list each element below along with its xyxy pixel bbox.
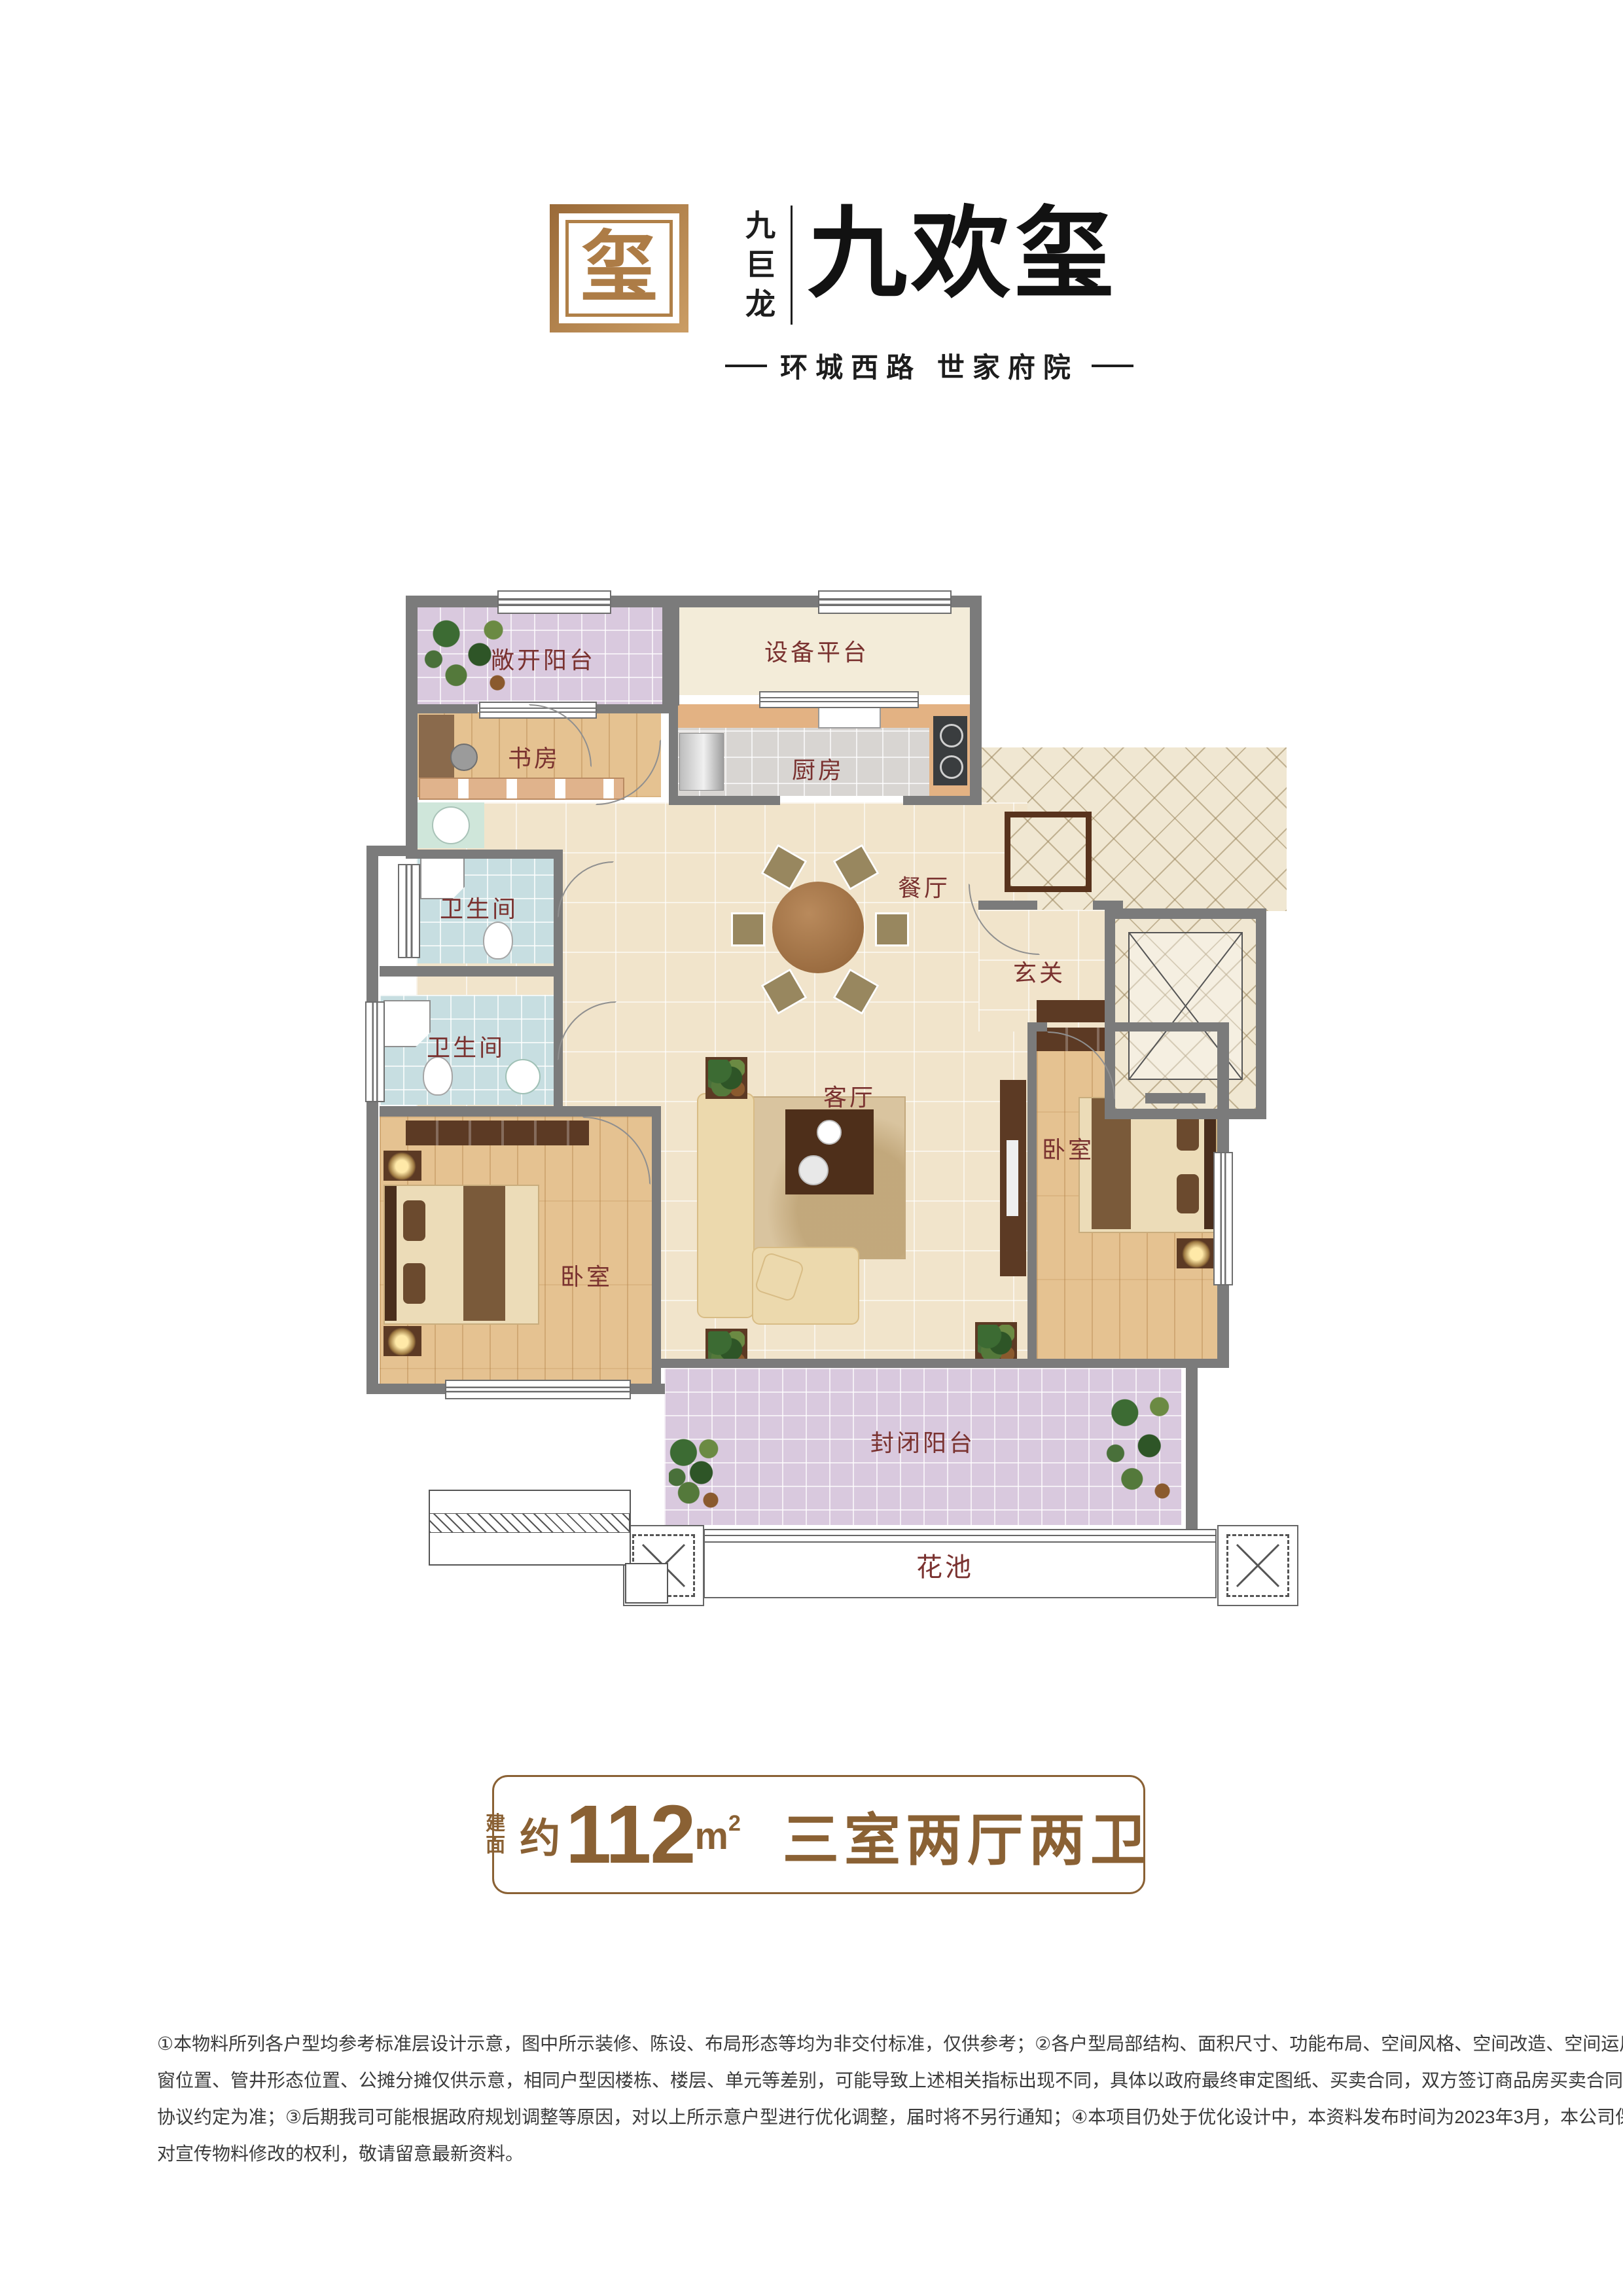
badge-area-value: 112 [565, 1793, 694, 1876]
bed-pillow [403, 1200, 425, 1241]
wall [662, 596, 679, 706]
bed-blanket [463, 1186, 505, 1321]
brand-tagline: 环城西路 世家府院 [720, 346, 1139, 386]
brand-divider [791, 206, 793, 325]
wall [406, 704, 478, 713]
dining-chair [875, 912, 909, 946]
wall [554, 850, 563, 1106]
badge-built-area-char1: 建 [486, 1813, 507, 1835]
tagline-dash-left [725, 365, 767, 367]
kitchen-stove [933, 716, 967, 785]
disclaimer-line-1: ①本物料所列各户型均参考标准层设计示意，图中所示装修、陈设、布局形态等均为非交付… [157, 2026, 1472, 2062]
wall [652, 1106, 661, 1394]
dining-table [772, 882, 864, 973]
bed-pillow [403, 1263, 425, 1304]
wall [366, 846, 378, 1394]
wall [380, 966, 554, 977]
label-open-balcony: 敞开阳台 [491, 641, 596, 675]
label-closed-balcony: 封闭阳台 [870, 1424, 975, 1458]
seal-glyph: 玺 [580, 230, 658, 307]
company-name-vertical: 九巨龙 [737, 209, 780, 334]
wall [1186, 1368, 1198, 1529]
plant-pot [975, 1322, 1017, 1364]
elevator-shaft [1105, 908, 1266, 1119]
step-outline [625, 1563, 668, 1604]
disclaimer-line-4: 对宣传物料修改的权利，敬请留意最新资料。 [157, 2136, 1472, 2172]
table-dish [817, 1120, 842, 1145]
badge-area-unit: m2 [694, 1811, 741, 1858]
window [497, 590, 611, 614]
vanity-basin [432, 806, 470, 844]
table-dish [798, 1155, 829, 1185]
window [759, 691, 919, 708]
entry-door-frame [1005, 812, 1092, 892]
project-name: 九欢玺 [808, 187, 1118, 321]
wall [970, 596, 982, 805]
label-kitchen: 厨房 [792, 751, 844, 785]
window [445, 1380, 631, 1399]
wardrobe-left [406, 1121, 589, 1145]
label-living: 客厅 [823, 1079, 876, 1113]
tagline-text: 环城西路 世家府院 [780, 346, 1079, 386]
wall [1113, 1022, 1229, 1031]
plant-decor [669, 1427, 721, 1518]
bed-left [383, 1185, 539, 1325]
lamp-glow [387, 1152, 416, 1181]
poster-page: 玺 九巨龙 九欢玺 环城西路 世家府院 [0, 0, 1623, 2296]
label-equipment-platform: 设备平台 [764, 634, 869, 668]
tagline-dash-right [1092, 365, 1133, 367]
window [1213, 1152, 1233, 1285]
label-foyer: 玄关 [1013, 954, 1065, 988]
tv-cabinet [1000, 1080, 1026, 1276]
study-chair [450, 744, 478, 771]
column-box [1217, 1525, 1298, 1606]
label-bathroom-lower: 卫生间 [427, 1029, 505, 1063]
badge-built-area-label: 建 面 [486, 1813, 507, 1856]
label-dining: 餐厅 [898, 869, 950, 903]
sofa-back [697, 1093, 755, 1318]
label-study: 书房 [508, 740, 560, 774]
wall [596, 704, 669, 713]
wall [661, 1359, 1027, 1368]
badge-built-area-char2: 面 [486, 1835, 507, 1856]
window [398, 864, 420, 958]
window [365, 1001, 385, 1102]
wall [903, 796, 982, 805]
study-bookshelf [419, 778, 624, 800]
stove-burner [940, 755, 963, 779]
seal-inner-frame: 玺 [565, 220, 673, 317]
lamp-glow [1182, 1240, 1211, 1268]
bed-pillow [1177, 1174, 1199, 1213]
label-bathroom-upper: 卫生间 [440, 890, 518, 924]
hatch-strip [429, 1513, 630, 1533]
badge-approx: 约 [520, 1805, 560, 1864]
tv-screen [1007, 1140, 1018, 1216]
area-badge: 建 面 约 112 m2 三室两厅两卫 [492, 1775, 1145, 1894]
badge-layout-text: 三室两厅两卫 [783, 1794, 1152, 1876]
floorplan: 敞开阳台 设备平台 书房 厨房 餐厅 玄关 卫生间 卫生间 客厅 卧室 卧室 封… [366, 576, 1296, 1610]
wall [380, 1106, 661, 1117]
window [818, 590, 952, 614]
wall [1027, 1022, 1037, 1359]
stove-burner [940, 724, 963, 747]
toilet-upper [483, 922, 513, 960]
wall [1093, 901, 1123, 910]
brand-seal-icon: 玺 [550, 204, 688, 332]
plant-pot [705, 1057, 747, 1099]
elevator-door [1145, 1093, 1205, 1103]
lamp-glow [387, 1327, 416, 1356]
wall [1027, 1359, 1229, 1368]
label-bedroom-left: 卧室 [560, 1258, 613, 1292]
label-bedroom-right: 卧室 [1042, 1131, 1094, 1165]
label-flower-bed: 花池 [916, 1546, 974, 1584]
bed-headboard [385, 1186, 397, 1321]
wall [669, 704, 678, 805]
wall [406, 850, 555, 859]
wall [406, 596, 418, 856]
disclaimer-line-2: 窗位置、管井形态位置、公摊分摊仅供示意，相同户型因楼栋、楼层、单元等差别，可能导… [157, 2062, 1472, 2099]
basin-lower [505, 1059, 541, 1094]
dining-chair [731, 912, 765, 946]
disclaimer-text: ①本物料所列各户型均参考标准层设计示意，图中所示装修、陈设、布局形态等均为非交付… [157, 2026, 1472, 2172]
kitchen-sink [818, 706, 881, 728]
wall [669, 796, 780, 805]
badge-area-unit-sup: 2 [728, 1811, 741, 1836]
kitchen-fridge [679, 733, 724, 791]
plant-decor [1105, 1371, 1177, 1521]
coffee-table [785, 1109, 874, 1194]
disclaimer-line-3: 协议约定为准；③后期我司可能根据政府规划调整等原因，对以上所示意户型进行优化调整… [157, 2099, 1472, 2136]
